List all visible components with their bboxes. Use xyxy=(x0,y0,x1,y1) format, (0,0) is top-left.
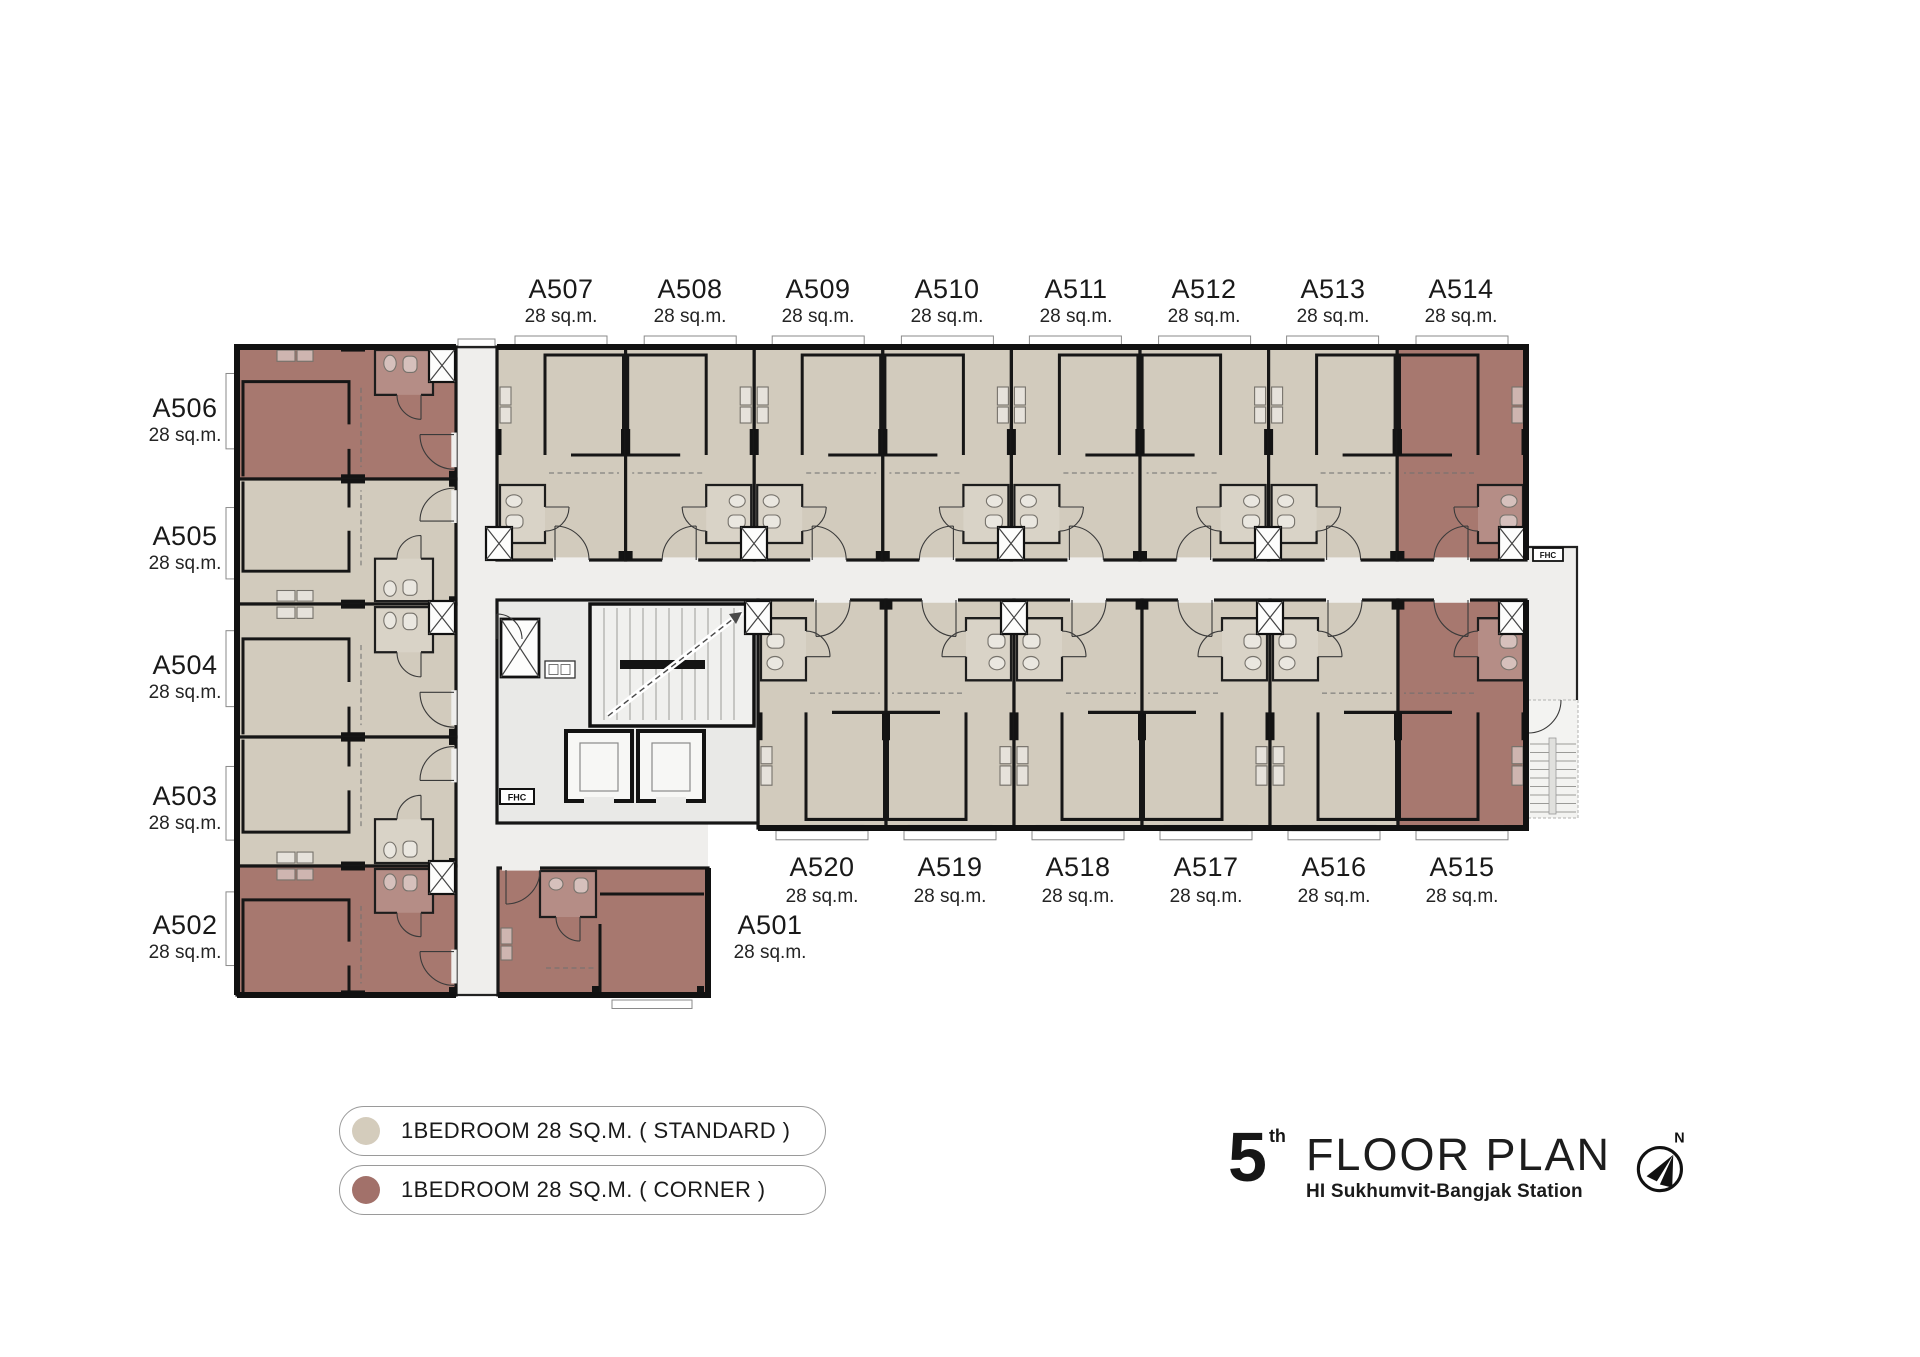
label-A514: A514 xyxy=(1428,274,1493,304)
elevator-1 xyxy=(566,731,632,803)
unit-A510 xyxy=(883,336,1012,563)
area-A506: 28 sq.m. xyxy=(149,425,222,446)
unit-A506 xyxy=(226,347,457,479)
area-A513: 28 sq.m. xyxy=(1297,306,1370,327)
unit-A505 xyxy=(226,479,457,604)
fhc-label: FHC xyxy=(508,793,527,803)
legend-dot-standard xyxy=(352,1117,380,1145)
unit-A519 xyxy=(885,597,1014,840)
unit-A511 xyxy=(1011,336,1140,563)
area-A508: 28 sq.m. xyxy=(654,306,727,327)
area-A502: 28 sq.m. xyxy=(149,942,222,963)
unit-A502 xyxy=(226,866,457,995)
unit-A513 xyxy=(1269,336,1398,563)
label-A510: A510 xyxy=(914,274,979,304)
area-A514: 28 sq.m. xyxy=(1425,306,1498,327)
north-label: N xyxy=(1674,1130,1684,1146)
floor-ordinal: th xyxy=(1269,1126,1286,1147)
area-A509: 28 sq.m. xyxy=(782,306,855,327)
area-A501: 28 sq.m. xyxy=(734,942,807,963)
area-A511: 28 sq.m. xyxy=(1040,306,1113,327)
title-block: 5 th FLOOR PLAN HI Sukhumvit-Bangjak Sta… xyxy=(1228,1124,1699,1204)
fire-hose-cabinet-right: FHC xyxy=(1533,548,1563,561)
area-A515: 28 sq.m. xyxy=(1426,886,1499,907)
unit-A518 xyxy=(1014,597,1143,840)
label-A517: A517 xyxy=(1173,852,1238,882)
legend-item-corner: 1BEDROOM 28 SQ.M. ( CORNER ) xyxy=(339,1165,826,1215)
unit-A517 xyxy=(1141,597,1270,840)
area-A518: 28 sq.m. xyxy=(1042,886,1115,907)
unit-A512 xyxy=(1140,336,1269,563)
label-A503: A503 xyxy=(152,781,217,811)
fhc-right-label: FHC xyxy=(1540,551,1557,560)
label-A512: A512 xyxy=(1171,274,1236,304)
label-A520: A520 xyxy=(789,852,854,882)
core: FHC xyxy=(497,600,758,823)
legend-dot-corner xyxy=(352,1176,380,1204)
label-A513: A513 xyxy=(1300,274,1365,304)
label-A518: A518 xyxy=(1045,852,1110,882)
fire-escape-stair xyxy=(1528,700,1578,818)
label-A507: A507 xyxy=(528,274,593,304)
area-A507: 28 sq.m. xyxy=(525,306,598,327)
area-A516: 28 sq.m. xyxy=(1298,886,1371,907)
legend-label-corner: 1BEDROOM 28 SQ.M. ( CORNER ) xyxy=(401,1177,765,1203)
unit-A507 xyxy=(497,336,626,563)
project-name: HI Sukhumvit-Bangjak Station xyxy=(1306,1181,1611,1203)
legend-item-standard: 1BEDROOM 28 SQ.M. ( STANDARD ) xyxy=(339,1106,826,1156)
floor-plan-page: FHC FHC A507 28 sq.m. A508 28 sq.m. A509… xyxy=(0,0,1920,1357)
label-A502: A502 xyxy=(152,910,217,940)
label-A504: A504 xyxy=(152,650,217,680)
label-A519: A519 xyxy=(917,852,982,882)
legend-label-standard: 1BEDROOM 28 SQ.M. ( STANDARD ) xyxy=(401,1118,790,1144)
label-A501: A501 xyxy=(737,910,802,940)
label-A511: A511 xyxy=(1044,274,1107,304)
area-A504: 28 sq.m. xyxy=(149,682,222,703)
floor-number: 5 xyxy=(1228,1124,1266,1191)
area-A503: 28 sq.m. xyxy=(149,813,222,834)
unit-A508 xyxy=(626,336,755,563)
label-A505: A505 xyxy=(152,521,217,551)
fire-hose-cabinet: FHC xyxy=(500,789,534,804)
label-A508: A508 xyxy=(657,274,722,304)
area-A505: 28 sq.m. xyxy=(149,553,222,574)
area-A512: 28 sq.m. xyxy=(1168,306,1241,327)
unit-A504 xyxy=(226,604,457,737)
area-A519: 28 sq.m. xyxy=(914,886,987,907)
legend: 1BEDROOM 28 SQ.M. ( STANDARD ) 1BEDROOM … xyxy=(339,1106,826,1224)
north-arrow-icon: N xyxy=(1629,1126,1699,1204)
unit-A509 xyxy=(754,336,883,563)
label-A509: A509 xyxy=(785,274,850,304)
area-A520: 28 sq.m. xyxy=(786,886,859,907)
label-A516: A516 xyxy=(1301,852,1366,882)
unit-A520 xyxy=(758,597,887,840)
unit-A503 xyxy=(226,737,457,866)
label-A506: A506 xyxy=(152,393,217,423)
unit-A501 xyxy=(498,865,708,1008)
unit-A516 xyxy=(1270,597,1399,840)
elevator-2 xyxy=(638,731,704,803)
area-A517: 28 sq.m. xyxy=(1170,886,1243,907)
area-A510: 28 sq.m. xyxy=(911,306,984,327)
page-title: FLOOR PLAN xyxy=(1306,1132,1611,1177)
staircase xyxy=(590,604,754,726)
label-A515: A515 xyxy=(1429,852,1494,882)
